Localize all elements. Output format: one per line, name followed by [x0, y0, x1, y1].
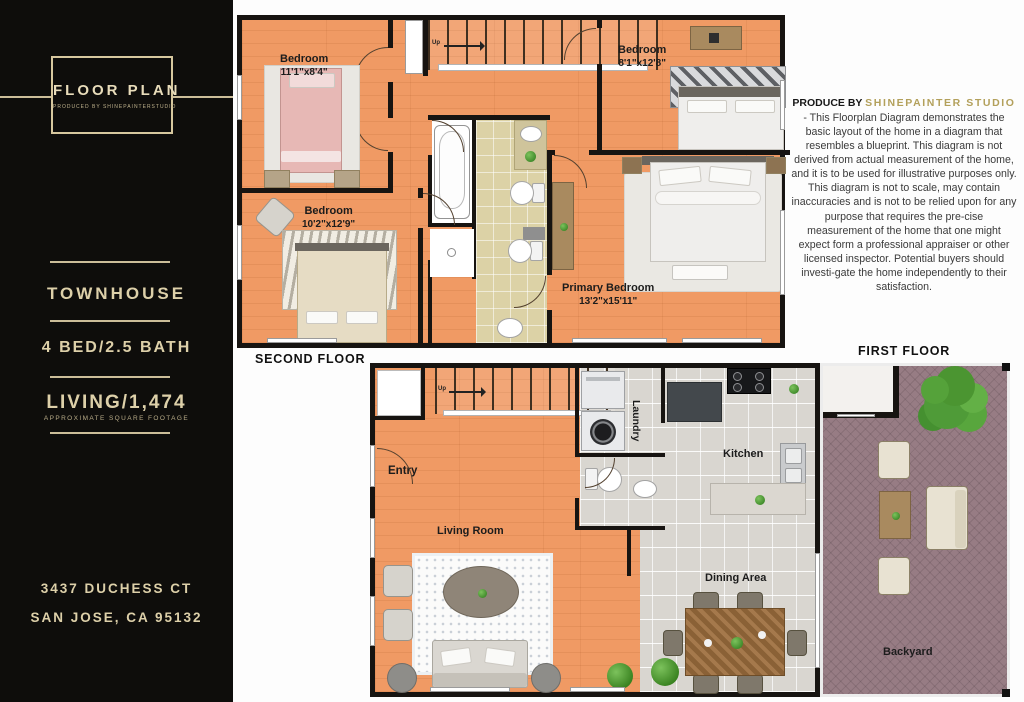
- wall: [597, 20, 602, 28]
- dryer: [581, 371, 625, 409]
- nightstand: [622, 157, 642, 174]
- plant: [478, 589, 487, 598]
- divider: [50, 376, 170, 378]
- desk-items: [709, 33, 719, 43]
- dining-chair: [787, 630, 807, 656]
- window: [237, 225, 242, 280]
- backyard-label: Backyard: [883, 646, 933, 660]
- armchair: [383, 609, 413, 641]
- studio-brand: SHINEPAINTER STUDIO: [865, 97, 1015, 109]
- fence-post: [1002, 363, 1010, 371]
- wardrobe: [552, 182, 574, 270]
- address-line2: SAN JOSE, CA 95132: [0, 610, 233, 625]
- sink-basin: [785, 468, 802, 483]
- up-label: Up: [432, 40, 440, 46]
- up-arrow-head: [480, 41, 490, 51]
- nightstand: [334, 170, 360, 188]
- tree: [921, 376, 949, 404]
- bathroom-sink: [520, 126, 542, 142]
- centerpiece-plant: [731, 637, 743, 649]
- wall: [597, 150, 790, 155]
- first-floor-plan: Up Laundry: [370, 363, 820, 697]
- utility-valve: [447, 248, 456, 257]
- divider: [50, 320, 170, 322]
- pillow: [658, 166, 701, 186]
- plant: [755, 495, 765, 505]
- living-sqft: LIVING/1,474: [0, 392, 233, 414]
- floor-plant: [651, 658, 679, 686]
- washer: [581, 411, 625, 451]
- wall: [421, 368, 425, 420]
- pillow: [735, 100, 775, 113]
- wall: [575, 453, 665, 457]
- bed: [297, 248, 387, 343]
- backyard-area: Backyard: [820, 363, 1010, 697]
- sofa: [432, 640, 528, 688]
- pillow: [484, 647, 516, 667]
- wall: [597, 64, 602, 155]
- sofa-cushion: [955, 490, 966, 548]
- house-bumpout: [823, 366, 893, 414]
- pillow: [708, 166, 751, 186]
- wall: [375, 416, 425, 420]
- window: [237, 75, 242, 120]
- living-room-label: Living Room: [437, 525, 504, 539]
- desk: [690, 26, 742, 50]
- patio-armchair: [878, 557, 910, 595]
- window: [267, 338, 337, 343]
- armchair: [383, 565, 413, 597]
- window: [370, 596, 375, 646]
- logo-rule-left: [0, 96, 51, 98]
- logo-box: FLOOR PLAN PRODUCED BY SHINEPAINTERSTUDI…: [51, 56, 173, 134]
- coffee-table: [443, 566, 519, 618]
- up-arrow-head: [481, 387, 491, 397]
- bed-bath: 4 BED/2.5 BATH: [0, 339, 233, 357]
- disclaimer: PRODUCE BY SHINEPAINTER STUDIO - This Fl…: [791, 97, 1017, 294]
- dining-label: Dining Area: [705, 572, 766, 586]
- fence-post: [1002, 689, 1010, 697]
- room-label: Primary Bedroom 13'2"x15'11": [562, 282, 654, 308]
- stair-rail: [438, 64, 648, 71]
- bed: [678, 86, 784, 150]
- second-floor-label: SECOND FLOOR: [255, 352, 365, 366]
- plant: [892, 512, 900, 520]
- entry-door-gap: [370, 445, 375, 487]
- property-type: TOWNHOUSE: [0, 284, 233, 304]
- room-dims: 13'2"x15'11": [562, 296, 654, 309]
- room-name: Bedroom: [618, 44, 666, 58]
- wall: [418, 228, 423, 343]
- pillow: [687, 100, 727, 113]
- wall: [388, 82, 393, 118]
- bed-bench: [672, 265, 728, 280]
- kitchen-label: Kitchen: [723, 448, 763, 462]
- dryer-panel: [586, 377, 620, 381]
- patio-armchair: [878, 441, 910, 479]
- wall: [893, 366, 899, 418]
- dining-table: [685, 608, 785, 676]
- first-floor-label: FIRST FLOOR: [858, 344, 950, 358]
- window: [837, 414, 875, 417]
- side-table: [531, 663, 561, 693]
- dining-chair: [693, 674, 719, 694]
- wall: [242, 188, 393, 193]
- primary-bed: [650, 162, 766, 262]
- wall: [661, 368, 665, 423]
- plant: [560, 223, 568, 231]
- powder-sink: [633, 480, 657, 498]
- bath-mat: [523, 227, 545, 240]
- room-dims: 11'1"x8'4": [280, 67, 328, 80]
- room-label: Bedroom 10'2"x12'9": [302, 205, 355, 231]
- washer-drum: [590, 419, 616, 445]
- up-label: Up: [438, 386, 446, 392]
- room-dims: 8'1"x12'8": [618, 58, 666, 71]
- patio-sofa: [926, 486, 968, 550]
- window: [570, 687, 625, 692]
- up-arrow: [449, 391, 483, 393]
- room-name: Bedroom: [280, 53, 328, 67]
- wall: [423, 20, 428, 76]
- produce-by-text: PRODUCE BY: [792, 97, 865, 109]
- wall: [547, 310, 552, 343]
- wall: [388, 20, 393, 48]
- plant: [789, 384, 799, 394]
- pedestal-sink: [497, 318, 523, 338]
- room-label: Bedroom 11'1"x8'4": [280, 53, 328, 79]
- wall: [388, 152, 393, 193]
- pillow: [440, 647, 472, 667]
- stair-landing: [405, 20, 423, 74]
- window: [780, 210, 785, 295]
- wall: [627, 526, 631, 576]
- toilet: [510, 181, 534, 205]
- room-label: Bedroom 8'1"x12'8": [618, 44, 666, 70]
- divider: [50, 261, 170, 263]
- window: [780, 80, 785, 130]
- side-table: [387, 663, 417, 693]
- nightstand: [264, 170, 290, 188]
- window: [572, 338, 667, 343]
- window: [682, 338, 762, 343]
- floor-plant: [607, 663, 633, 689]
- disclaimer-heading: PRODUCE BY SHINEPAINTER STUDIO: [791, 97, 1017, 109]
- patio-table: [879, 491, 911, 539]
- window: [430, 687, 510, 692]
- bed-pink: [280, 68, 342, 173]
- room-name: Bedroom: [302, 205, 355, 219]
- kitchen-island: [710, 483, 806, 515]
- entry-closet: [377, 370, 421, 416]
- bath-counter: [514, 120, 547, 170]
- kitchen-sink: [780, 443, 806, 487]
- pillow: [306, 311, 338, 324]
- floorplan-sheet: FLOOR PLAN PRODUCED BY SHINEPAINTERSTUDI…: [0, 0, 1024, 702]
- sofa-back: [433, 673, 527, 687]
- sink-basin: [785, 448, 802, 464]
- plate: [704, 639, 712, 647]
- plate: [758, 631, 766, 639]
- headboard: [295, 243, 389, 251]
- sidebar: FLOOR PLAN PRODUCED BY SHINEPAINTERSTUDI…: [0, 0, 233, 702]
- blanket-fold: [281, 151, 341, 162]
- window: [370, 518, 375, 558]
- divider: [50, 432, 170, 434]
- plant: [525, 151, 536, 162]
- dining-chair: [737, 674, 763, 694]
- dining-chair: [663, 630, 683, 656]
- logo-title: FLOOR PLAN: [53, 82, 171, 99]
- wall: [575, 526, 665, 530]
- disclaimer-body: - This Floorplan Diagram demonstrates th…: [791, 111, 1017, 294]
- sqft-note: APPROXIMATE SQUARE FOOTAGE: [0, 415, 233, 422]
- room-dims: 10'2"x12'9": [302, 219, 355, 232]
- logo-rule-right: [173, 96, 233, 98]
- laundry-label: Laundry: [630, 400, 642, 441]
- nightstand: [766, 157, 786, 174]
- duvet-fold: [655, 191, 761, 205]
- address-line1: 3437 DUCHESS CT: [0, 581, 233, 596]
- stove: [727, 368, 771, 394]
- room-name: Primary Bedroom: [562, 282, 654, 296]
- refrigerator: [667, 382, 722, 422]
- wall: [575, 368, 579, 453]
- headboard: [679, 87, 783, 97]
- wall: [589, 150, 597, 155]
- toilet: [508, 239, 532, 263]
- up-arrow: [444, 45, 482, 47]
- logo-subtitle: PRODUCED BY SHINEPAINTERSTUDIO: [53, 104, 171, 110]
- utility-closet: [430, 229, 474, 277]
- pillow: [346, 311, 378, 324]
- entry-door-arc: [377, 448, 413, 484]
- second-floor-plan: Up: [237, 15, 785, 348]
